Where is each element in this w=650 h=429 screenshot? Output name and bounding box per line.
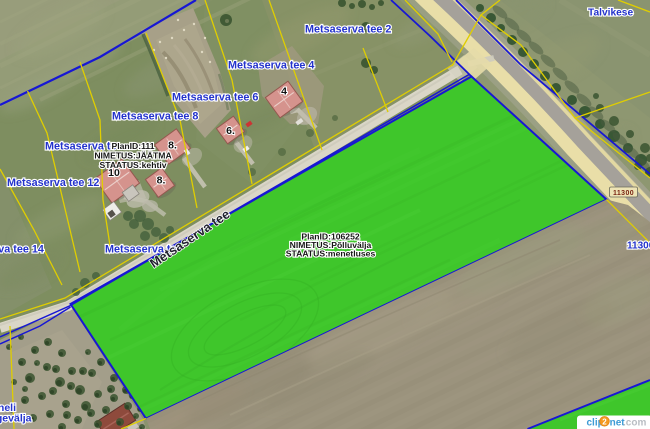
svg-text:4: 4	[281, 86, 287, 98]
svg-text:PlanID:111: PlanID:111	[112, 141, 155, 151]
svg-text:Metsaserva tee 4: Metsaserva tee 4	[228, 60, 314, 72]
svg-text:11300: 11300	[613, 190, 634, 197]
svg-text:Metsaserva tee 12: Metsaserva tee 12	[7, 177, 99, 189]
svg-text:gevälja: gevälja	[0, 413, 32, 425]
svg-text:.com: .com	[623, 417, 646, 428]
svg-text:NIMETUS:JÄÄTMA: NIMETUS:JÄÄTMA	[94, 151, 171, 161]
svg-text:STAATUS:kehtiv: STAATUS:kehtiv	[99, 160, 166, 170]
svg-text:11300: 11300	[627, 241, 650, 252]
svg-text:2: 2	[602, 417, 607, 426]
svg-text:8.: 8.	[157, 175, 166, 187]
svg-text:Metsaserva tee 2: Metsaserva tee 2	[305, 24, 391, 36]
svg-text:6.: 6.	[226, 125, 235, 137]
svg-text:Metsaserva tee 8: Metsaserva tee 8	[112, 111, 198, 123]
svg-text:serva tee 14: serva tee 14	[0, 244, 44, 256]
svg-text:Talvikese: Talvikese	[588, 8, 633, 19]
svg-text:Metsaserva tee 6: Metsaserva tee 6	[172, 92, 258, 104]
svg-text:STAATUS:menetluses: STAATUS:menetluses	[286, 249, 376, 259]
